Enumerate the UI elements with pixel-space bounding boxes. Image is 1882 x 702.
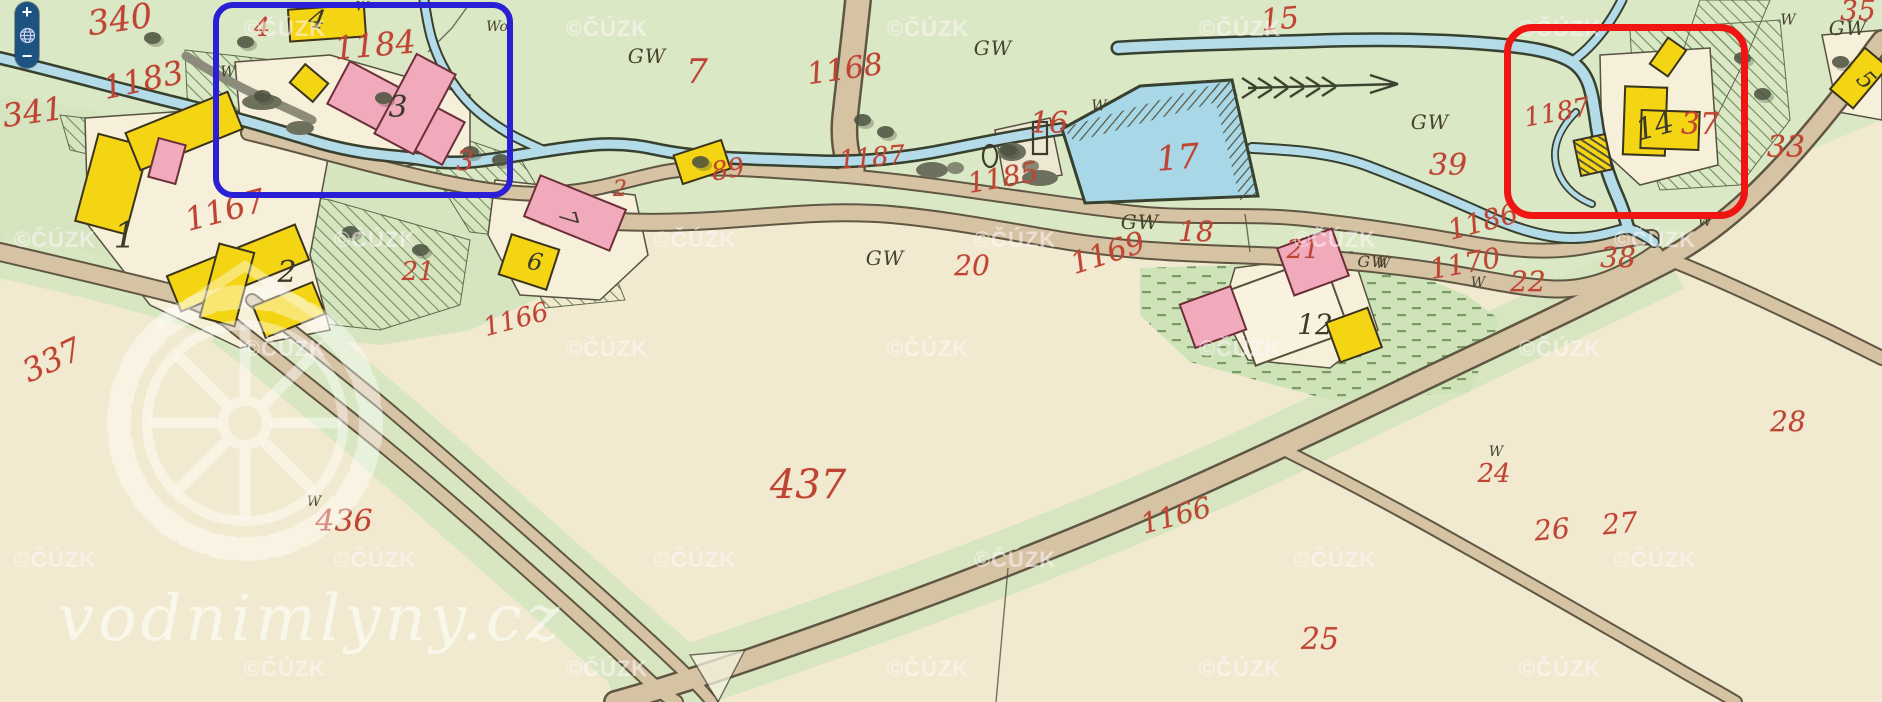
annotation-box-red	[1504, 24, 1748, 219]
brand-watermark: vodnimlyny.cz	[58, 582, 563, 656]
zoom-control: + −	[15, 2, 39, 68]
zoom-in-button[interactable]: +	[15, 2, 39, 24]
annotation-box-blue	[213, 2, 513, 198]
zoom-out-button[interactable]: −	[15, 46, 39, 68]
map-viewport[interactable]: 3401183341411843116733721116628971168118…	[0, 0, 1882, 702]
watermill-logo-icon	[85, 248, 405, 578]
globe-icon[interactable]	[15, 24, 39, 46]
